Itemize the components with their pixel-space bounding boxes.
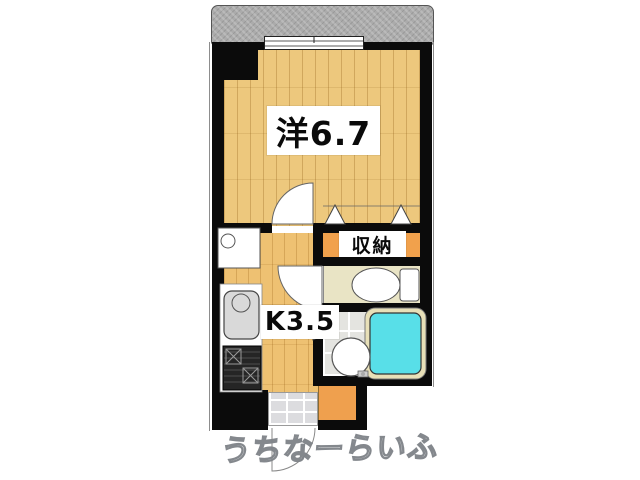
wall-bottomleft-block — [212, 390, 268, 430]
wall-mid-left — [212, 223, 272, 233]
storage-label: 収納 — [339, 231, 406, 257]
wall-closet-toilet — [313, 257, 430, 266]
western-room-label: 洋6.7 — [267, 106, 380, 155]
entrance-hall-floor — [318, 386, 356, 421]
floor-plan: 洋6.7 収納 K3.5 うちなーらいふ — [0, 0, 640, 480]
outer-outline-right — [433, 42, 434, 387]
balcony — [211, 5, 434, 45]
kitchen-label: K3.5 — [261, 305, 339, 339]
wall-left — [212, 42, 224, 430]
watermark-text: うちなーらいふ — [188, 422, 472, 467]
entrance-tiles — [268, 392, 318, 426]
wall-right — [420, 42, 432, 386]
toilet-room-floor — [323, 266, 420, 303]
outer-outline-left — [209, 42, 210, 431]
wall-bath-bottom — [313, 376, 432, 386]
